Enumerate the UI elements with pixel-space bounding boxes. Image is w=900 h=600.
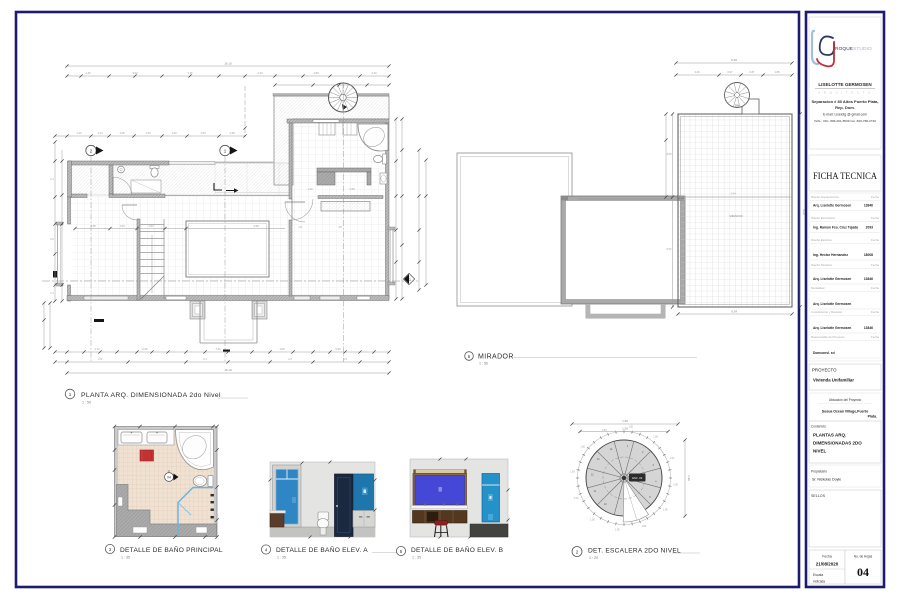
svg-text:2.2: 2.2 (288, 357, 292, 361)
svg-text:3.49: 3.49 (694, 70, 700, 74)
svg-text:Ing. Hector Hernandez: Ing. Hector Hernandez (813, 253, 848, 257)
svg-text:Fecha: Fecha (871, 335, 879, 339)
svg-text:4.58: 4.58 (349, 187, 355, 191)
svg-text:1.90: 1.90 (622, 419, 628, 423)
svg-text:16.10: 16.10 (224, 368, 232, 372)
svg-text:1.10: 1.10 (94, 347, 100, 351)
svg-text:Rep. Dom.: Rep. Dom. (835, 105, 855, 110)
svg-text:9.39: 9.39 (731, 58, 737, 62)
svg-text:13846: 13846 (864, 277, 873, 281)
svg-text:PLANTAS ARQ.: PLANTAS ARQ. (813, 433, 846, 438)
svg-text:Fecha: Fecha (871, 216, 879, 220)
svg-text:2.6: 2.6 (50, 237, 54, 241)
svg-text:Diseño Sanitario: Diseño Sanitario (811, 263, 833, 267)
svg-text:1.50: 1.50 (574, 497, 579, 500)
svg-text:1.40: 1.40 (145, 131, 151, 135)
svg-text:Fecha: Fecha (871, 195, 879, 199)
svg-text:1.1: 1.1 (50, 291, 54, 295)
svg-text:2.1: 2.1 (50, 177, 54, 181)
svg-text:Fecha: Fecha (871, 238, 879, 242)
svg-text:04: 04 (857, 565, 869, 579)
svg-text:9.34: 9.34 (731, 310, 737, 314)
svg-text:2.30: 2.30 (371, 71, 377, 75)
svg-text:Responsable del Proyecto: Responsable del Proyecto (811, 335, 845, 339)
svg-text:Plata.: Plata. (868, 415, 877, 419)
svg-text:1.50: 1.50 (670, 457, 675, 460)
svg-text:2.80: 2.80 (313, 71, 319, 75)
svg-text:18008: 18008 (864, 253, 873, 257)
svg-text:1.88: 1.88 (774, 70, 780, 74)
svg-text:Fecha: Fecha (871, 286, 879, 290)
svg-text:1.50: 1.50 (590, 518, 595, 521)
svg-text:1.50: 1.50 (653, 436, 658, 439)
svg-text:Escala: Escala (813, 573, 823, 577)
svg-text:3.45: 3.45 (187, 71, 193, 75)
svg-text:Contenido:: Contenido: (811, 425, 827, 429)
svg-text:SELLOS: SELLOS (811, 494, 826, 498)
svg-text:No. de Hojas: No. de Hojas (854, 555, 873, 559)
svg-text:1: 1 (409, 278, 411, 282)
svg-text:Fecha: Fecha (871, 263, 879, 267)
svg-text:Coordinación y Revisión: Coordinación y Revisión (811, 310, 843, 314)
svg-text:PROYECTO: PROYECTO (812, 368, 837, 373)
svg-text:MIRADOR: MIRADOR (478, 354, 514, 361)
svg-text:0.97: 0.97 (727, 70, 733, 74)
svg-text:16.10: 16.10 (224, 62, 232, 66)
svg-text:1.8: 1.8 (298, 225, 302, 229)
svg-text:DET. ESCALERA 2DO NIVEL: DET. ESCALERA 2DO NIVEL (588, 548, 681, 555)
svg-text:9.00: 9.00 (802, 209, 806, 215)
svg-text:1.23: 1.23 (171, 131, 177, 135)
svg-text:2.9: 2.9 (98, 357, 102, 361)
svg-text:E-mail: Liselotg @ gmail.com: E-mail: Liselotg @ gmail.com (823, 113, 867, 117)
svg-text:LISELOTTE GERMOSEN: LISELOTTE GERMOSEN (818, 82, 872, 87)
svg-text:1.50: 1.50 (615, 529, 620, 532)
svg-text:1 : 35: 1 : 35 (121, 556, 130, 560)
svg-text:Ubicación del Proyecto: Ubicación del Proyecto (829, 398, 862, 402)
svg-text:1.50: 1.50 (673, 484, 678, 487)
svg-text:1.53: 1.53 (148, 224, 154, 228)
svg-text:DETALLE DE BAÑO PRINCIPAL: DETALLE DE BAÑO PRINCIPAL (120, 545, 223, 554)
svg-text:1 : 35: 1 : 35 (412, 556, 421, 560)
svg-text:Telfs.: Ofic. 809-261-5539 Ce: Telfs.: Ofic. 809-261-5539 Cel. 829-768-… (814, 119, 876, 123)
svg-text:Fecha: Fecha (871, 310, 879, 314)
svg-text:Ing. Ramon Fco. Cruz Tejada: Ing. Ramon Fco. Cruz Tejada (813, 226, 858, 230)
svg-text:1.28: 1.28 (229, 131, 235, 135)
svg-text:DETALLE DE BAÑO ELEV. B: DETALLE DE BAÑO ELEV. B (411, 545, 504, 554)
svg-text:ESC. 02: ESC. 02 (632, 476, 643, 480)
svg-text:A R Q U I T E C T A: A R Q U I T E C T A (818, 91, 871, 95)
svg-text:0.87: 0.87 (749, 70, 755, 74)
svg-text:Domconsl. srl: Domconsl. srl (813, 351, 835, 355)
svg-text:Arq. Liselotte Germosen: Arq. Liselotte Germosen (813, 302, 851, 306)
svg-text:1.10: 1.10 (307, 187, 313, 191)
svg-text:2: 2 (576, 550, 579, 555)
svg-text:PLANTA ARQ. DIMENSIONADA 2do N: PLANTA ARQ. DIMENSIONADA 2do Nivel (81, 392, 221, 399)
svg-text:NIVEL: NIVEL (813, 449, 827, 454)
svg-text:Diseño Arquitectonico: Diseño Arquitectonico (811, 195, 839, 199)
svg-text:DIMENSIONADAS 2DO: DIMENSIONADAS 2DO (813, 441, 862, 446)
svg-text:Sr. Nickolas Doyle: Sr. Nickolas Doyle (812, 478, 841, 482)
svg-text:5.57: 5.57 (666, 247, 672, 251)
svg-text:13846: 13846 (864, 204, 873, 208)
svg-text:Diseño Eléctrico: Diseño Eléctrico (811, 238, 832, 242)
svg-text:1 : 35: 1 : 35 (277, 556, 286, 560)
svg-text:FICHA TECNICA: FICHA TECNICA (813, 171, 877, 181)
svg-text:Diseño Estructural: Diseño Estructural (811, 216, 835, 220)
svg-text:4.5: 4.5 (338, 225, 342, 229)
svg-text:1.50: 1.50 (642, 525, 647, 528)
svg-text:1.90: 1.90 (687, 475, 691, 481)
svg-text:1.60: 1.60 (200, 131, 206, 135)
svg-text:1 : 50: 1 : 50 (82, 401, 91, 405)
svg-text:Vivienda Unifamiliar: Vivienda Unifamiliar (813, 378, 854, 383)
svg-text:1.50: 1.50 (628, 425, 633, 428)
svg-text:1.25: 1.25 (119, 131, 125, 135)
svg-text:3.00: 3.00 (132, 71, 138, 75)
svg-text:Propietario: Propietario (811, 470, 827, 474)
svg-text:21/08/2020: 21/08/2020 (816, 562, 839, 567)
svg-text:2.38: 2.38 (90, 224, 96, 228)
svg-text:1.9: 1.9 (343, 357, 347, 361)
svg-text:0.95: 0.95 (335, 347, 341, 351)
svg-text:4.50: 4.50 (666, 152, 672, 156)
svg-text:Arq. Liselotte Germosen: Arq. Liselotte Germosen (813, 204, 851, 208)
svg-text:1.50: 1.50 (580, 445, 585, 448)
svg-text:2.1: 2.1 (203, 357, 207, 361)
svg-text:1.45: 1.45 (85, 71, 91, 75)
svg-text:Fecha: Fecha (822, 555, 832, 559)
svg-text:1.50: 1.50 (622, 427, 628, 431)
svg-text:Arq. Liselotte Germosen: Arq. Liselotte Germosen (813, 326, 851, 330)
svg-text:1 : 20: 1 : 20 (589, 556, 598, 560)
svg-text:DETALLE DE BAÑO ELEV. A: DETALLE DE BAÑO ELEV. A (276, 545, 368, 554)
svg-text:2.98: 2.98 (253, 224, 259, 228)
svg-text:2.44: 2.44 (730, 192, 736, 196)
svg-text:1 : 50: 1 : 50 (479, 362, 488, 366)
svg-text:1.50: 1.50 (119, 224, 125, 228)
svg-text:DN: DN (735, 104, 739, 108)
svg-text:1.20: 1.20 (76, 131, 82, 135)
svg-text:04: 04 (167, 476, 171, 480)
svg-text:1.50: 1.50 (570, 470, 575, 473)
svg-text:2.40: 2.40 (257, 71, 263, 75)
svg-text:0.90: 0.90 (142, 347, 148, 351)
svg-text:13846: 13846 (864, 326, 873, 330)
svg-text:Arq. Liselotte Germosen: Arq. Liselotte Germosen (813, 277, 851, 281)
svg-text:Sosua Ocean Village,Puerto: Sosua Ocean Village,Puerto (822, 410, 868, 414)
svg-text:1.40: 1.40 (215, 347, 221, 351)
svg-text:1.50: 1.50 (663, 509, 668, 512)
svg-text:Modalidad: Modalidad (811, 286, 825, 290)
svg-text:2093: 2093 (866, 226, 874, 230)
svg-text:1.05: 1.05 (279, 347, 285, 351)
svg-text:Indicada: Indicada (813, 580, 825, 584)
svg-text:1: 1 (69, 392, 72, 397)
svg-text:1.14: 1.14 (97, 131, 103, 135)
svg-text:MIRADOR: MIRADOR (729, 214, 742, 218)
svg-text:ROQUESTUDIO: ROQUESTUDIO (835, 46, 872, 52)
svg-text:Separacion # 80 Altos Puerto P: Separacion # 80 Altos Puerto Plata, (812, 99, 879, 104)
